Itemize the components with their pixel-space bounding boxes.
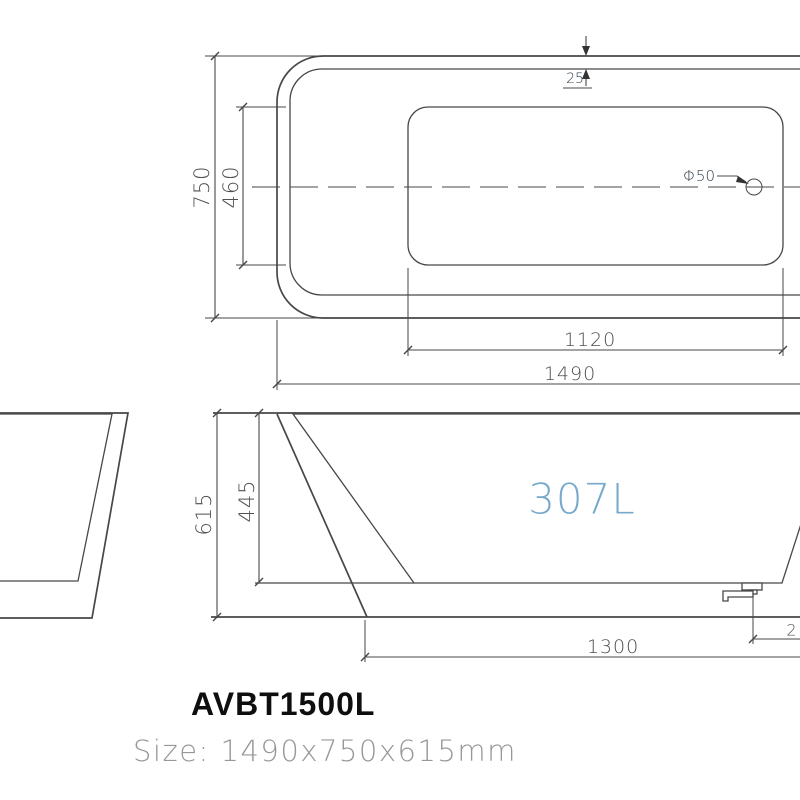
- inner-depth-label: 445: [235, 479, 259, 522]
- capacity-label: 307L: [528, 475, 636, 524]
- inner-length-label: 1120: [564, 329, 616, 351]
- technical-drawing-page: 750 460 1120 1490 25 Φ50 615 445 1300 2 …: [0, 0, 800, 800]
- end-view-outer-shell: [0, 413, 128, 618]
- rim-width-label: 25: [566, 71, 584, 87]
- drain-pipe: [723, 591, 753, 601]
- base-length-label: 1300: [587, 636, 639, 658]
- inner-width-label: 460: [219, 165, 243, 208]
- bathtub-drawing: [0, 0, 800, 800]
- model-number: AVBT1500L: [191, 686, 375, 723]
- edge-offset-label: 2: [786, 621, 797, 640]
- size-caption: Size: 1490x750x615mm: [133, 734, 517, 768]
- rim-dim-down-arrow: [582, 46, 590, 56]
- overall-length-label: 1490: [544, 363, 596, 385]
- overall-height-label: 615: [192, 492, 216, 535]
- overall-width-label: 750: [190, 165, 214, 208]
- drain-diameter-label: Φ50: [683, 167, 715, 185]
- side-view-left-slant: [277, 414, 367, 617]
- drain-flange: [742, 583, 762, 590]
